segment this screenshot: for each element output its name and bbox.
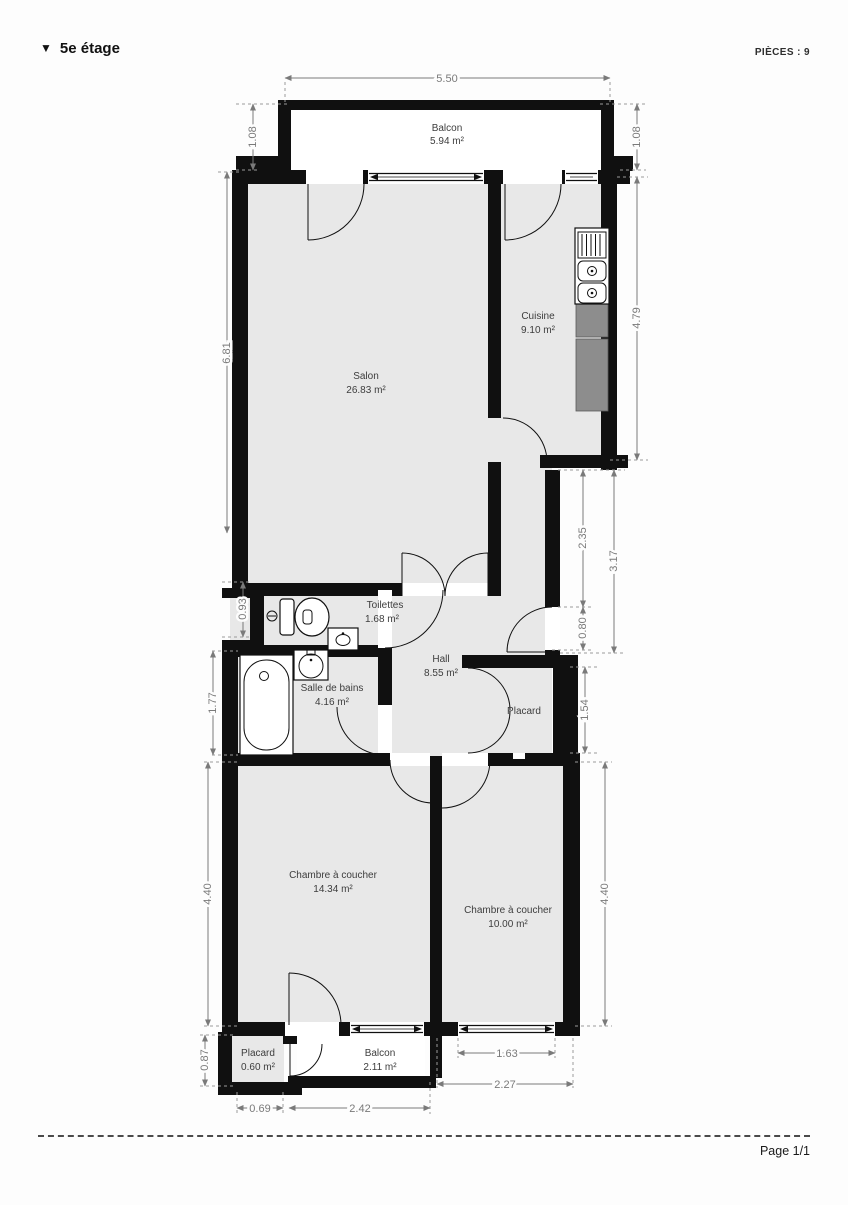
room-balcon-bas-name: Balcon [365,1048,396,1059]
bathroom-sink-fixture [294,650,328,680]
dim-chambre1-height: 4.40 [202,883,214,904]
room-cuisine-name: Cuisine [521,311,555,322]
room-placard-bas-area: 0.60 m² [241,1062,276,1073]
room-bains-name: Salle de bains [301,683,364,694]
room-cuisine-area: 9.10 m² [521,325,556,336]
room-chambre2-name: Chambre à coucher [464,905,552,916]
dim-fenetre-width: 1.63 [496,1048,517,1060]
dim-chambre2-width: 2.27 [494,1079,515,1091]
room-chambre1-name: Chambre à coucher [289,870,377,881]
room-salon-name: Salon [353,371,379,382]
room-hall-area: 8.55 m² [424,668,459,679]
kitchen-counter [576,303,608,411]
room-balcon-top-area: 5.94 m² [430,136,465,147]
room-placard-bas-name: Placard [241,1048,275,1059]
hand-basin-fixture [328,628,358,650]
room-toilettes-area: 1.68 m² [365,614,400,625]
dim-top-width: 5.50 [436,73,457,85]
room-hall-name: Hall [432,654,449,665]
dim-corridor-total: 3.17 [608,550,620,571]
dim-balcony-right: 1.08 [631,126,643,147]
dim-balcony-left: 1.08 [247,126,259,147]
room-toilettes-name: Toilettes [367,600,404,611]
dim-entrance-width: 0.80 [577,617,589,638]
footer-divider [38,1135,810,1137]
room-chambre2-area: 10.00 m² [488,919,528,930]
room-balcon-top-name: Balcon [432,123,463,134]
dim-corridor-height: 2.35 [577,527,589,548]
room-bains-area: 4.16 m² [315,697,350,708]
page-number: Page 1/1 [760,1144,810,1158]
dim-salon-height: 6.81 [221,342,233,363]
dim-cuisine-height: 4.79 [631,307,643,328]
dim-balcon-bas-width: 2.42 [349,1103,370,1115]
dim-placard-bas-height: 0.87 [199,1049,211,1070]
dim-bains-height: 1.77 [207,692,219,713]
dim-placard-height: 1.54 [579,699,591,720]
room-balcon-bas-area: 2.11 m² [363,1062,397,1073]
bathtub-fixture [240,655,293,755]
room-salon-area: 26.83 m² [346,385,386,396]
dim-chambre2-height: 4.40 [599,883,611,904]
floor-plan: 5.50 1.08 1.08 6.81 4.79 2.35 3.17 0.80 … [0,0,848,1200]
kitchen-sink-fixture [575,228,609,304]
dim-placard-bas-width: 0.69 [249,1103,270,1115]
room-chambre1-area: 14.34 m² [313,884,353,895]
room-placard-hall-name: Placard [507,706,541,717]
dim-toilettes-height: 0.93 [237,598,249,619]
